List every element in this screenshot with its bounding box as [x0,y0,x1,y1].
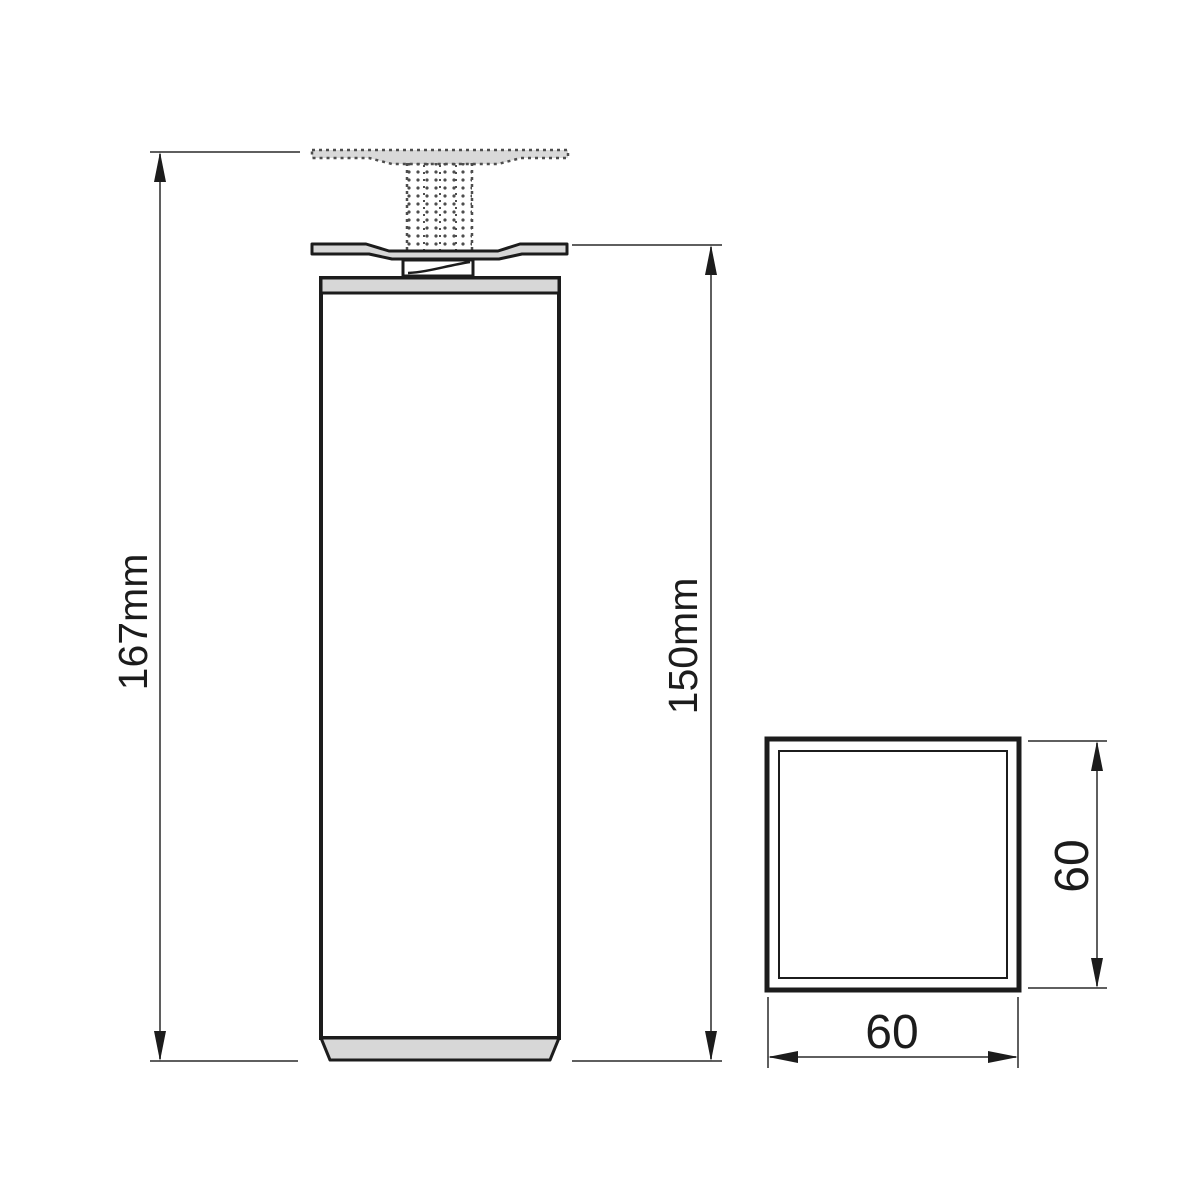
arrow-left [768,1051,798,1063]
arrow-down [1091,958,1103,988]
leg-body [321,278,559,1038]
drawing-page: 167mm 150mm 60 [0,0,1200,1200]
leg-foot [321,1038,559,1060]
dimension-leg-height: 150mm [572,245,722,1061]
section-outer-square [767,739,1019,990]
cross-section-view [767,739,1019,990]
arrow-up [1091,741,1103,771]
dimension-section-width: 60 [768,997,1018,1068]
leg-top-cap [321,278,559,293]
leg-height-label: 150mm [660,578,706,715]
arrow-right [988,1051,1018,1063]
arrow-down [705,1031,717,1061]
front-view [312,150,568,1060]
section-height-label: 60 [1046,839,1099,892]
total-height-label: 167mm [110,554,156,691]
section-width-label: 60 [865,1006,918,1059]
arrow-up [705,245,717,275]
arrow-up [154,152,166,182]
arrow-down [154,1031,166,1061]
dimension-section-height: 60 [1028,741,1107,988]
tabletop-phantom [312,150,568,164]
drawing-canvas: 167mm 150mm 60 [0,0,1200,1200]
dimension-total-height: 167mm [110,152,300,1061]
